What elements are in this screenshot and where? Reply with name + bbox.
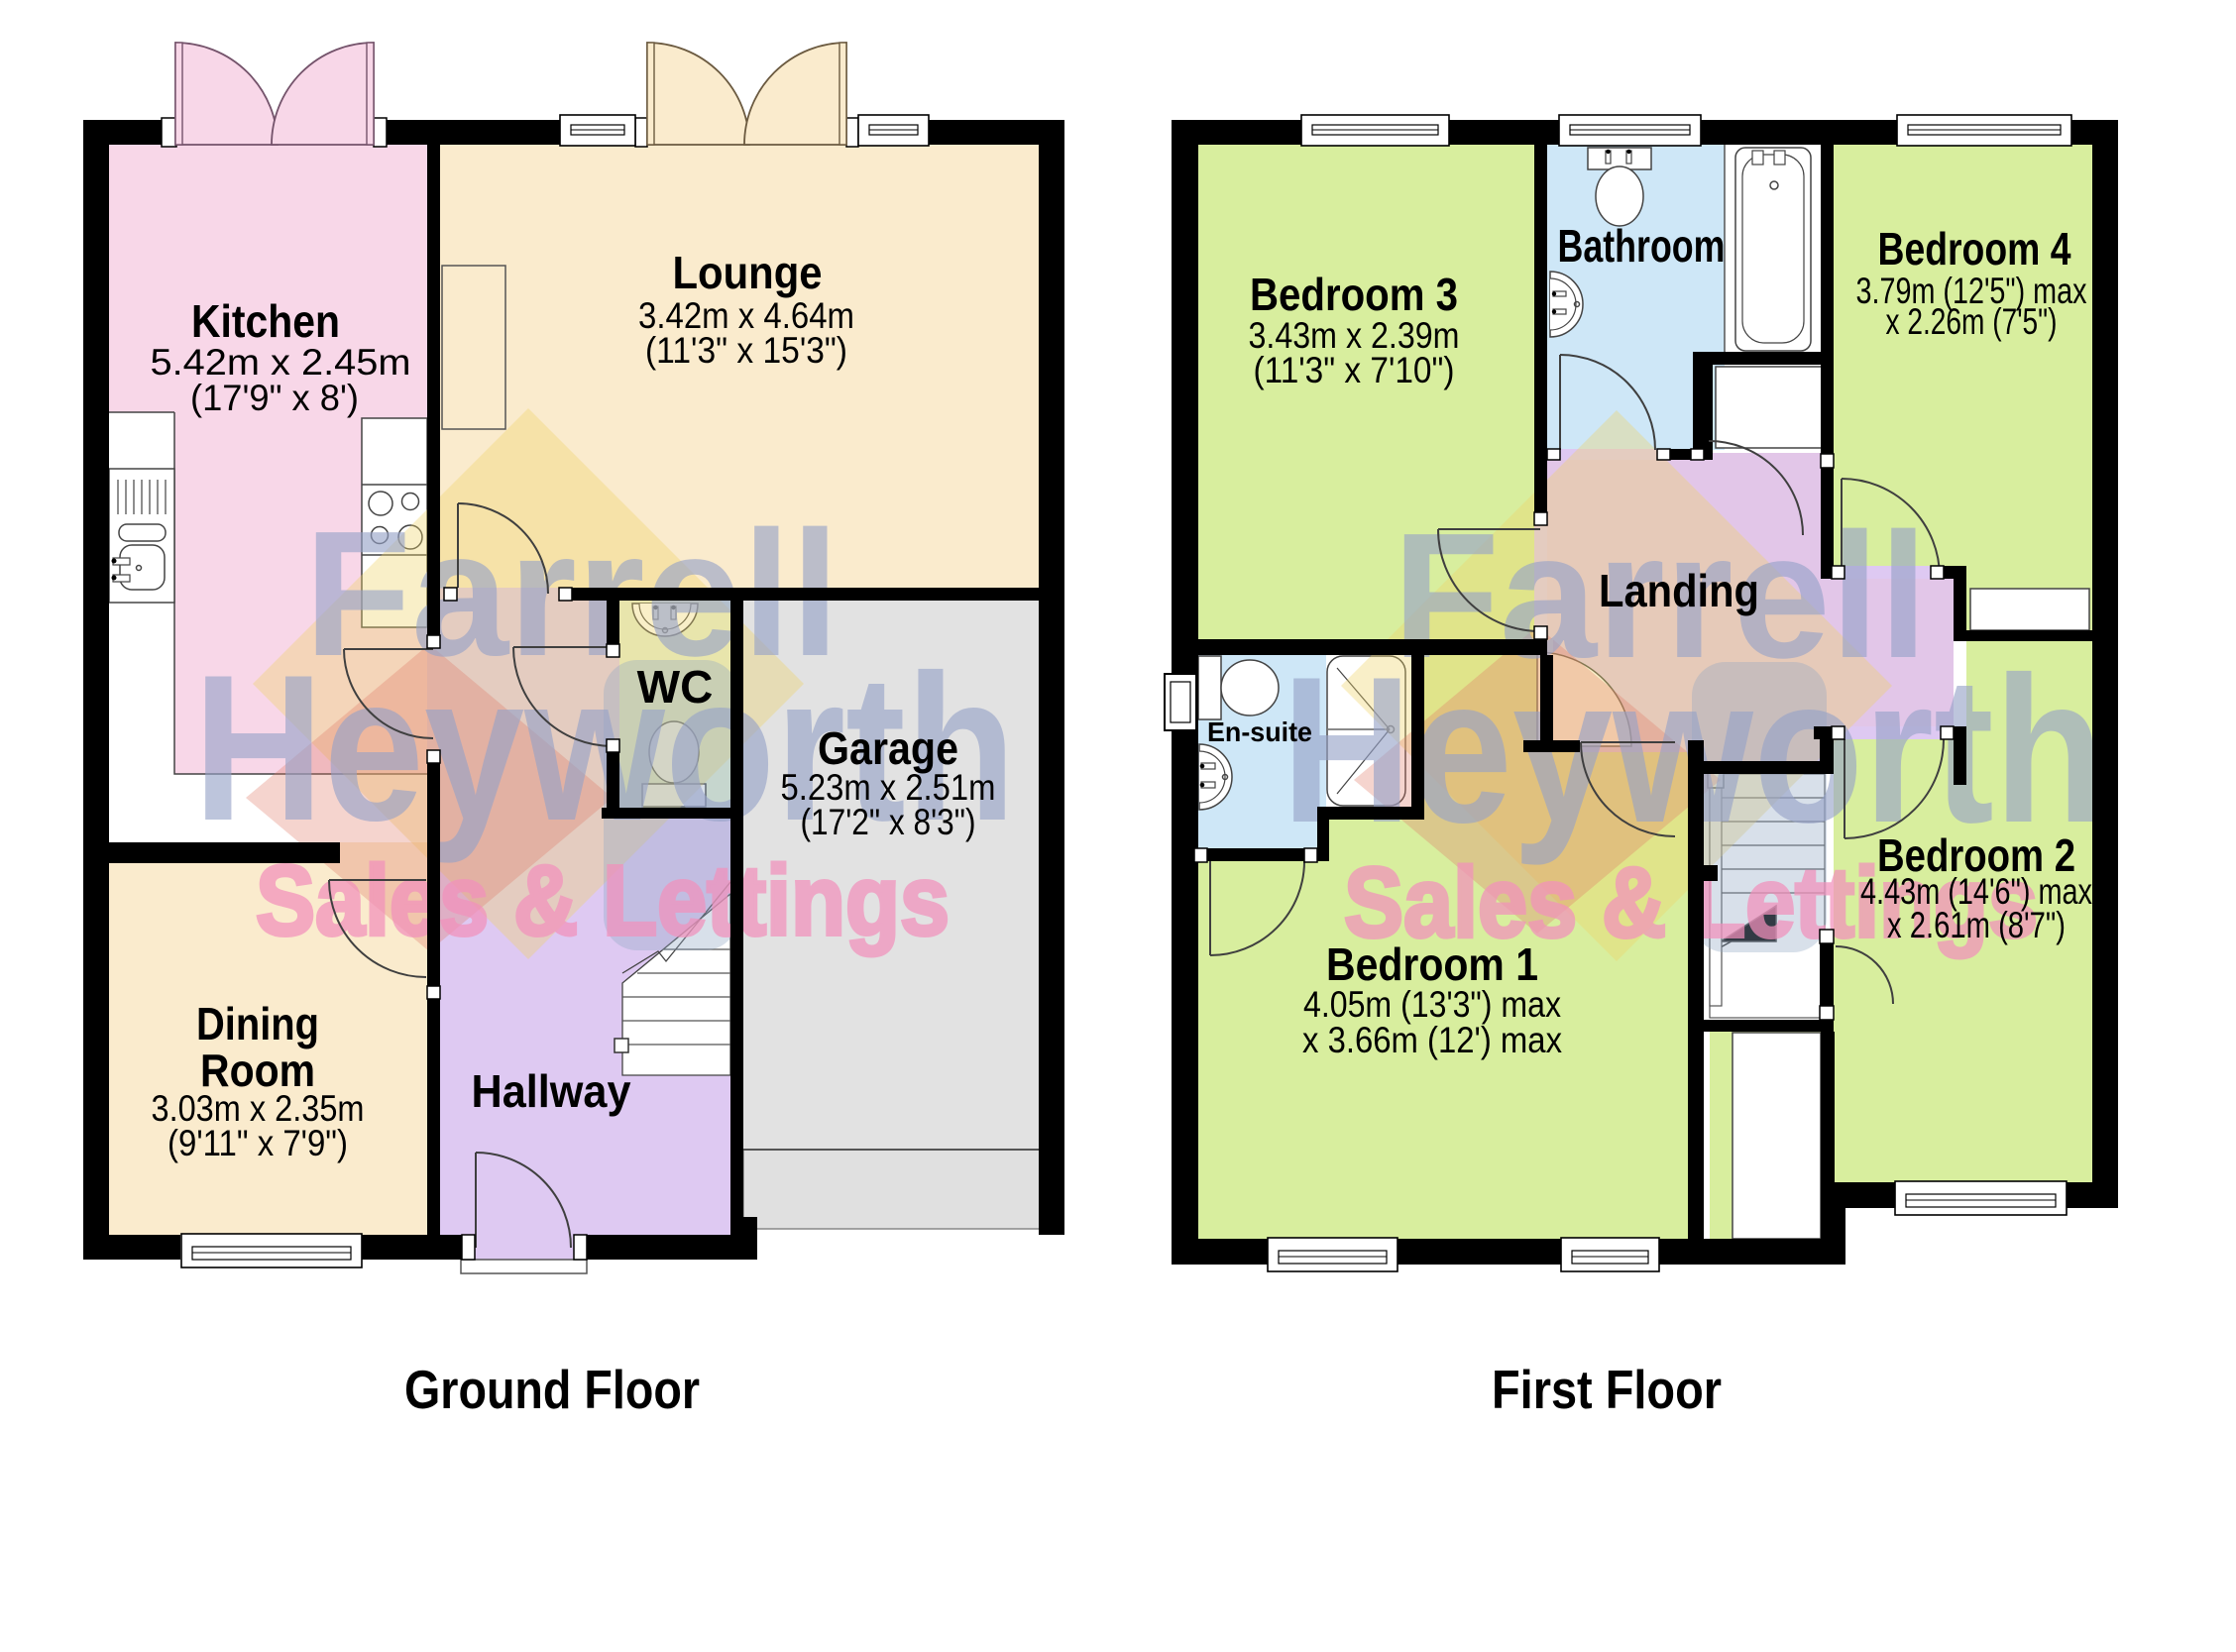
svg-text:x 2.61m (8'7"): x 2.61m (8'7") <box>1887 905 2066 945</box>
svg-text:(11'3" x 7'10"): (11'3" x 7'10") <box>1254 350 1455 390</box>
svg-text:x 2.26m (7'5"): x 2.26m (7'5") <box>1886 301 2058 342</box>
svg-text:First Floor: First Floor <box>1492 1359 1722 1420</box>
svg-text:En-suite: En-suite <box>1207 716 1312 747</box>
svg-text:Lounge: Lounge <box>673 247 823 298</box>
svg-text:(11'3" x 15'3"): (11'3" x 15'3") <box>645 330 847 371</box>
svg-text:5.42m x 2.45m: 5.42m x 2.45m <box>151 342 411 383</box>
svg-text:(17'2" x 8'3"): (17'2" x 8'3") <box>801 802 976 842</box>
svg-text:Kitchen: Kitchen <box>191 295 340 347</box>
svg-text:Dining: Dining <box>196 998 319 1049</box>
svg-text:Bathroom: Bathroom <box>1558 220 1726 272</box>
svg-text:WC: WC <box>637 661 714 713</box>
svg-text:Bedroom 3: Bedroom 3 <box>1250 269 1458 320</box>
svg-text:(9'11" x 7'9"): (9'11" x 7'9") <box>168 1123 348 1163</box>
svg-text:Sales & Lettings: Sales & Lettings <box>256 845 950 956</box>
svg-text:Bedroom 4: Bedroom 4 <box>1878 223 2071 275</box>
svg-text:4.05m (13'3") max: 4.05m (13'3") max <box>1303 984 1561 1025</box>
svg-text:Landing: Landing <box>1599 565 1759 616</box>
svg-text:x 3.66m (12') max: x 3.66m (12') max <box>1302 1020 1562 1060</box>
svg-text:Hallway: Hallway <box>472 1065 631 1117</box>
svg-text:Bedroom 1: Bedroom 1 <box>1326 938 1538 990</box>
svg-text:Ground Floor: Ground Floor <box>404 1359 700 1420</box>
svg-text:(17'9" x 8'): (17'9" x 8') <box>190 378 359 418</box>
